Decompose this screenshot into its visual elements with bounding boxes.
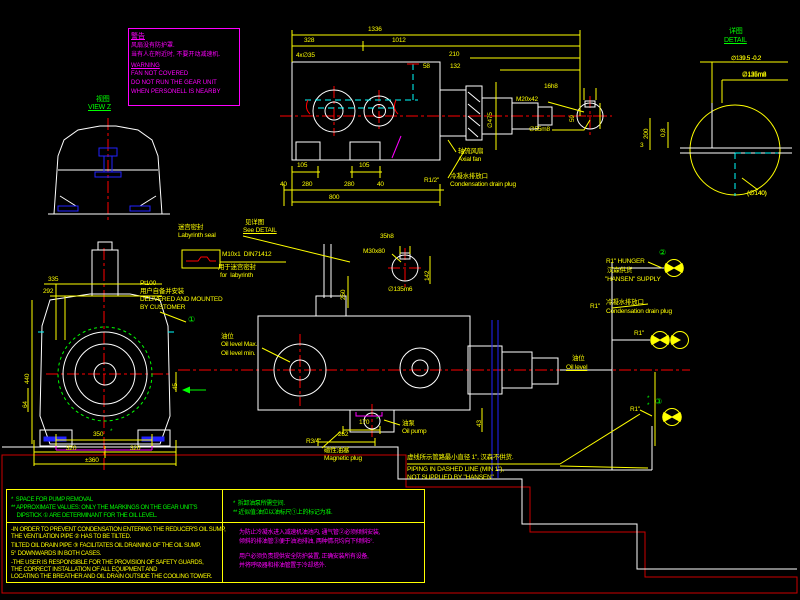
dim-label: 40 [377, 182, 384, 189]
dim-label: M20x42 [516, 97, 538, 104]
note-zh-3: 为防止冷凝水进入减速机油池内, 通气管②必须倾斜安装, [239, 530, 380, 536]
see-detail-label: See DETAIL [243, 228, 277, 235]
note-zh-4: 倾斜的排油管③便于油池排油, 两种情况均向下倾斜5°. [239, 539, 374, 545]
hansen-supply-line2: "HANSEN" SUPPLY [605, 277, 661, 284]
dim-label: M30x80 [363, 249, 385, 256]
oil-level-max: Oil level Max. [221, 342, 257, 349]
cad-canvas: 警告 风扇没有防护罩. 当有人在附近时, 不要开动减速机. WARNING FA… [0, 0, 800, 600]
dim-label: 280 [344, 182, 354, 189]
labyrinth-seal-zh: 迷宫密封 [178, 225, 203, 232]
dim-label: 350 [93, 432, 103, 439]
drain-plug-top-size: R1/2" [424, 178, 439, 185]
dim-label: 320 [130, 446, 140, 453]
hansen-supply-line1: R1" HUNGER [606, 259, 645, 266]
dim-label: 4x∅35 [296, 53, 315, 60]
dim-label: 320 [66, 446, 76, 453]
dim-label: ±360 [85, 458, 99, 465]
oil-pump-en: Oil pump [402, 429, 426, 436]
pipe-elbows [306, 64, 419, 114]
side-view [40, 242, 170, 446]
dim-label: 1336 [368, 27, 382, 34]
note-en-1: * SPACE FOR PUMP REMOVAL [11, 497, 93, 503]
dim-label: * [376, 417, 378, 424]
view-z-breather [58, 148, 150, 211]
cond-right-size: R1" [590, 304, 600, 311]
view-z-drawing [48, 126, 170, 214]
labyrinth-seal-en: Labyrinth seal [178, 233, 216, 240]
oil-level-right-star2: * [647, 403, 649, 410]
oil-level-right-en: Oil level [566, 365, 587, 372]
oil-level-right-zh: 油位 [572, 356, 585, 363]
axial-fan-zh: 轴流风扇 [458, 149, 483, 156]
note-en-4: -IN ORDER TO PREVENT CONDENSATION ENTERI… [11, 527, 226, 533]
dim-label: 292 [43, 289, 53, 296]
dim-label: 440 [25, 374, 32, 384]
dim-label: ∅135m8 [742, 73, 766, 80]
dim-label: 200 [644, 129, 651, 139]
dim-label: 0,8 [661, 129, 668, 137]
note-en-10: LOCATING THE BREATHER AND OIL DRAIN OUTS… [11, 574, 212, 580]
oil-pump-zh: 油泵 [402, 421, 415, 428]
warning-title-zh: 警告 [131, 32, 237, 42]
dim-label: 105 [297, 163, 307, 170]
dim-label: 280 [302, 182, 312, 189]
dim-label: 328 [304, 38, 314, 45]
note-en-2: ** APPROXIMATE VALUES: ONLY THE MARKINGS… [11, 505, 197, 511]
see-detail-zh: 见详图 [245, 220, 264, 227]
dim-label: 105 [359, 163, 369, 170]
front-view [258, 244, 558, 432]
warning-title-en: WARNING [131, 62, 237, 71]
warning-en-line1: FAN NOT COVERED [131, 70, 237, 79]
piping-note-en2: NOT SUPPLIED BY "HANSEN" [407, 475, 494, 482]
note-en-9: THE CORRECT INSTALLATION OF ALL EQUIPMEN… [11, 567, 157, 573]
grease-nipple-symbol [182, 250, 220, 268]
note-zh-1: * 拆卸油泵所需空间. [233, 501, 285, 507]
notes-row-divider [7, 522, 424, 523]
dim-label: ∅139.5 -0.2 [731, 56, 761, 62]
dim-label: 800 [329, 195, 339, 202]
note-zh-6: 并将呼吸器和排油管置于冷却塔外. [239, 563, 326, 569]
dim-label: ∅55m8 [529, 127, 550, 134]
dim-label: 1012 [392, 38, 406, 45]
pt100-zh: 用户自备并安装 [140, 289, 184, 296]
dim-label: 170 [359, 420, 369, 427]
valve-bottom-size: R1" [630, 407, 640, 414]
valve-mid-size: R1" [634, 331, 644, 338]
pt100-tag: Pt100 [140, 281, 156, 288]
view-direction-arrow [182, 387, 206, 394]
dim-label: 210 [449, 52, 459, 59]
detail-circle [690, 105, 780, 195]
note-zh-2: ** 近似值:油位以油标尺①上的标记为准. [233, 510, 332, 516]
detail-shaft-lines [680, 103, 792, 153]
dim-label: 3 [640, 143, 643, 150]
dim-label: 40 [280, 182, 287, 189]
note-en-8: -THE USER IS RESPONSIBLE FOR THE PROVISI… [11, 560, 203, 566]
dim-label: ∅135m6 [388, 287, 412, 294]
cond-right-zh: 冷凝水排放口 [606, 300, 644, 307]
oil-level-left-zh: 油位 [221, 334, 234, 341]
notes-box: * SPACE FOR PUMP REMOVAL ** APPROXIMATE … [6, 489, 425, 583]
callout-circle-3: ③ [655, 398, 662, 406]
piping-note-en1: PIPING IN DASHED LINE (MIN 1"), [407, 467, 504, 474]
detail-label-zh: 详图 [729, 28, 743, 35]
warning-zh-line2: 当有人在附近时, 不要开动减速机. [131, 51, 237, 60]
dim-label: 16h8 [544, 84, 558, 91]
note-en-5: THE VENTILATION PIPE ② HAS TO BE TILTED. [11, 534, 131, 540]
note-en-6: TILTED OIL DRAIN PIPE ③ FACILITATES OIL … [11, 543, 201, 549]
dim-label: 142 [425, 271, 432, 281]
dim-label: * [110, 429, 112, 436]
magnetic-plug-zh: 磁性油塞 [324, 448, 349, 455]
dim-label: ∅475 [488, 112, 495, 128]
dim-label: 58 [423, 64, 430, 71]
detail-label-en: DETAIL [724, 37, 747, 44]
pt100-en2: BY CUSTOMER [140, 305, 185, 312]
grease-zh: 用于迷宫密封 [218, 265, 256, 272]
note-en-7: 5° DOWNWARDS IN BOTH CASES. [11, 551, 101, 557]
top-view [292, 62, 603, 160]
warning-zh-line1: 风扇没有防护罩. [131, 42, 237, 51]
view-z-label-en: VIEW Z [88, 104, 111, 111]
drain-plug-top-zh: 冷凝水排放口 [450, 174, 488, 181]
grease-spec: M10x1 DIN71412 [222, 252, 271, 259]
note-zh-5: 用户必须负责提供安全防护装置, 正确安装所有设备, [239, 554, 369, 560]
warning-box: 警告 风扇没有防护罩. 当有人在附近时, 不要开动减速机. WARNING FA… [128, 28, 240, 106]
piping-note-zh: 虚线所示管路最小直径 1", 汉森不供货. [407, 455, 513, 462]
dim-label: 262 [338, 432, 348, 439]
callout-circle-1: ① [188, 316, 195, 324]
grease-en: for labyrinth [220, 273, 253, 280]
magnetic-plug-size: R3/4" [306, 439, 321, 446]
drain-plug-top-en: Condensation drain plug [450, 182, 516, 189]
dim-label: 335 [48, 277, 58, 284]
hansen-supply-zh: 汉森供货 [607, 268, 632, 275]
magnetic-plug-en: Magnetic plug [324, 456, 362, 463]
notes-column-divider [222, 490, 223, 582]
dim-label: 45 [173, 383, 180, 390]
dim-label: 64 [23, 401, 30, 408]
dim-label: 35h8 [380, 234, 394, 241]
dim-label: 132 [450, 64, 460, 71]
axial-fan-en: Axial fan [458, 157, 481, 164]
dim-label: 250 [341, 290, 348, 300]
warning-en-line2: DO NOT RUN THE GEAR UNIT [131, 79, 237, 88]
cond-right-en: Condensation drain plug [606, 309, 672, 316]
centerlines [46, 86, 690, 470]
oil-level-min: Oil level min. [221, 351, 255, 358]
warning-en-line3: WHEN PERSONELL IS NEARBY [131, 88, 237, 97]
dim-label: 43 [477, 420, 484, 427]
pt100-en1: DELIVERED AND MOUNTED [140, 297, 222, 304]
dim-label: (∅140) [747, 191, 767, 198]
note-en-3: DIPSTICK ① ARE DETERMINANT FOR THE OIL L… [11, 513, 157, 519]
dim-label: 59 [570, 115, 577, 122]
view-z-label-zh: 视图 [96, 96, 110, 103]
callout-circle-2: ② [659, 249, 666, 257]
